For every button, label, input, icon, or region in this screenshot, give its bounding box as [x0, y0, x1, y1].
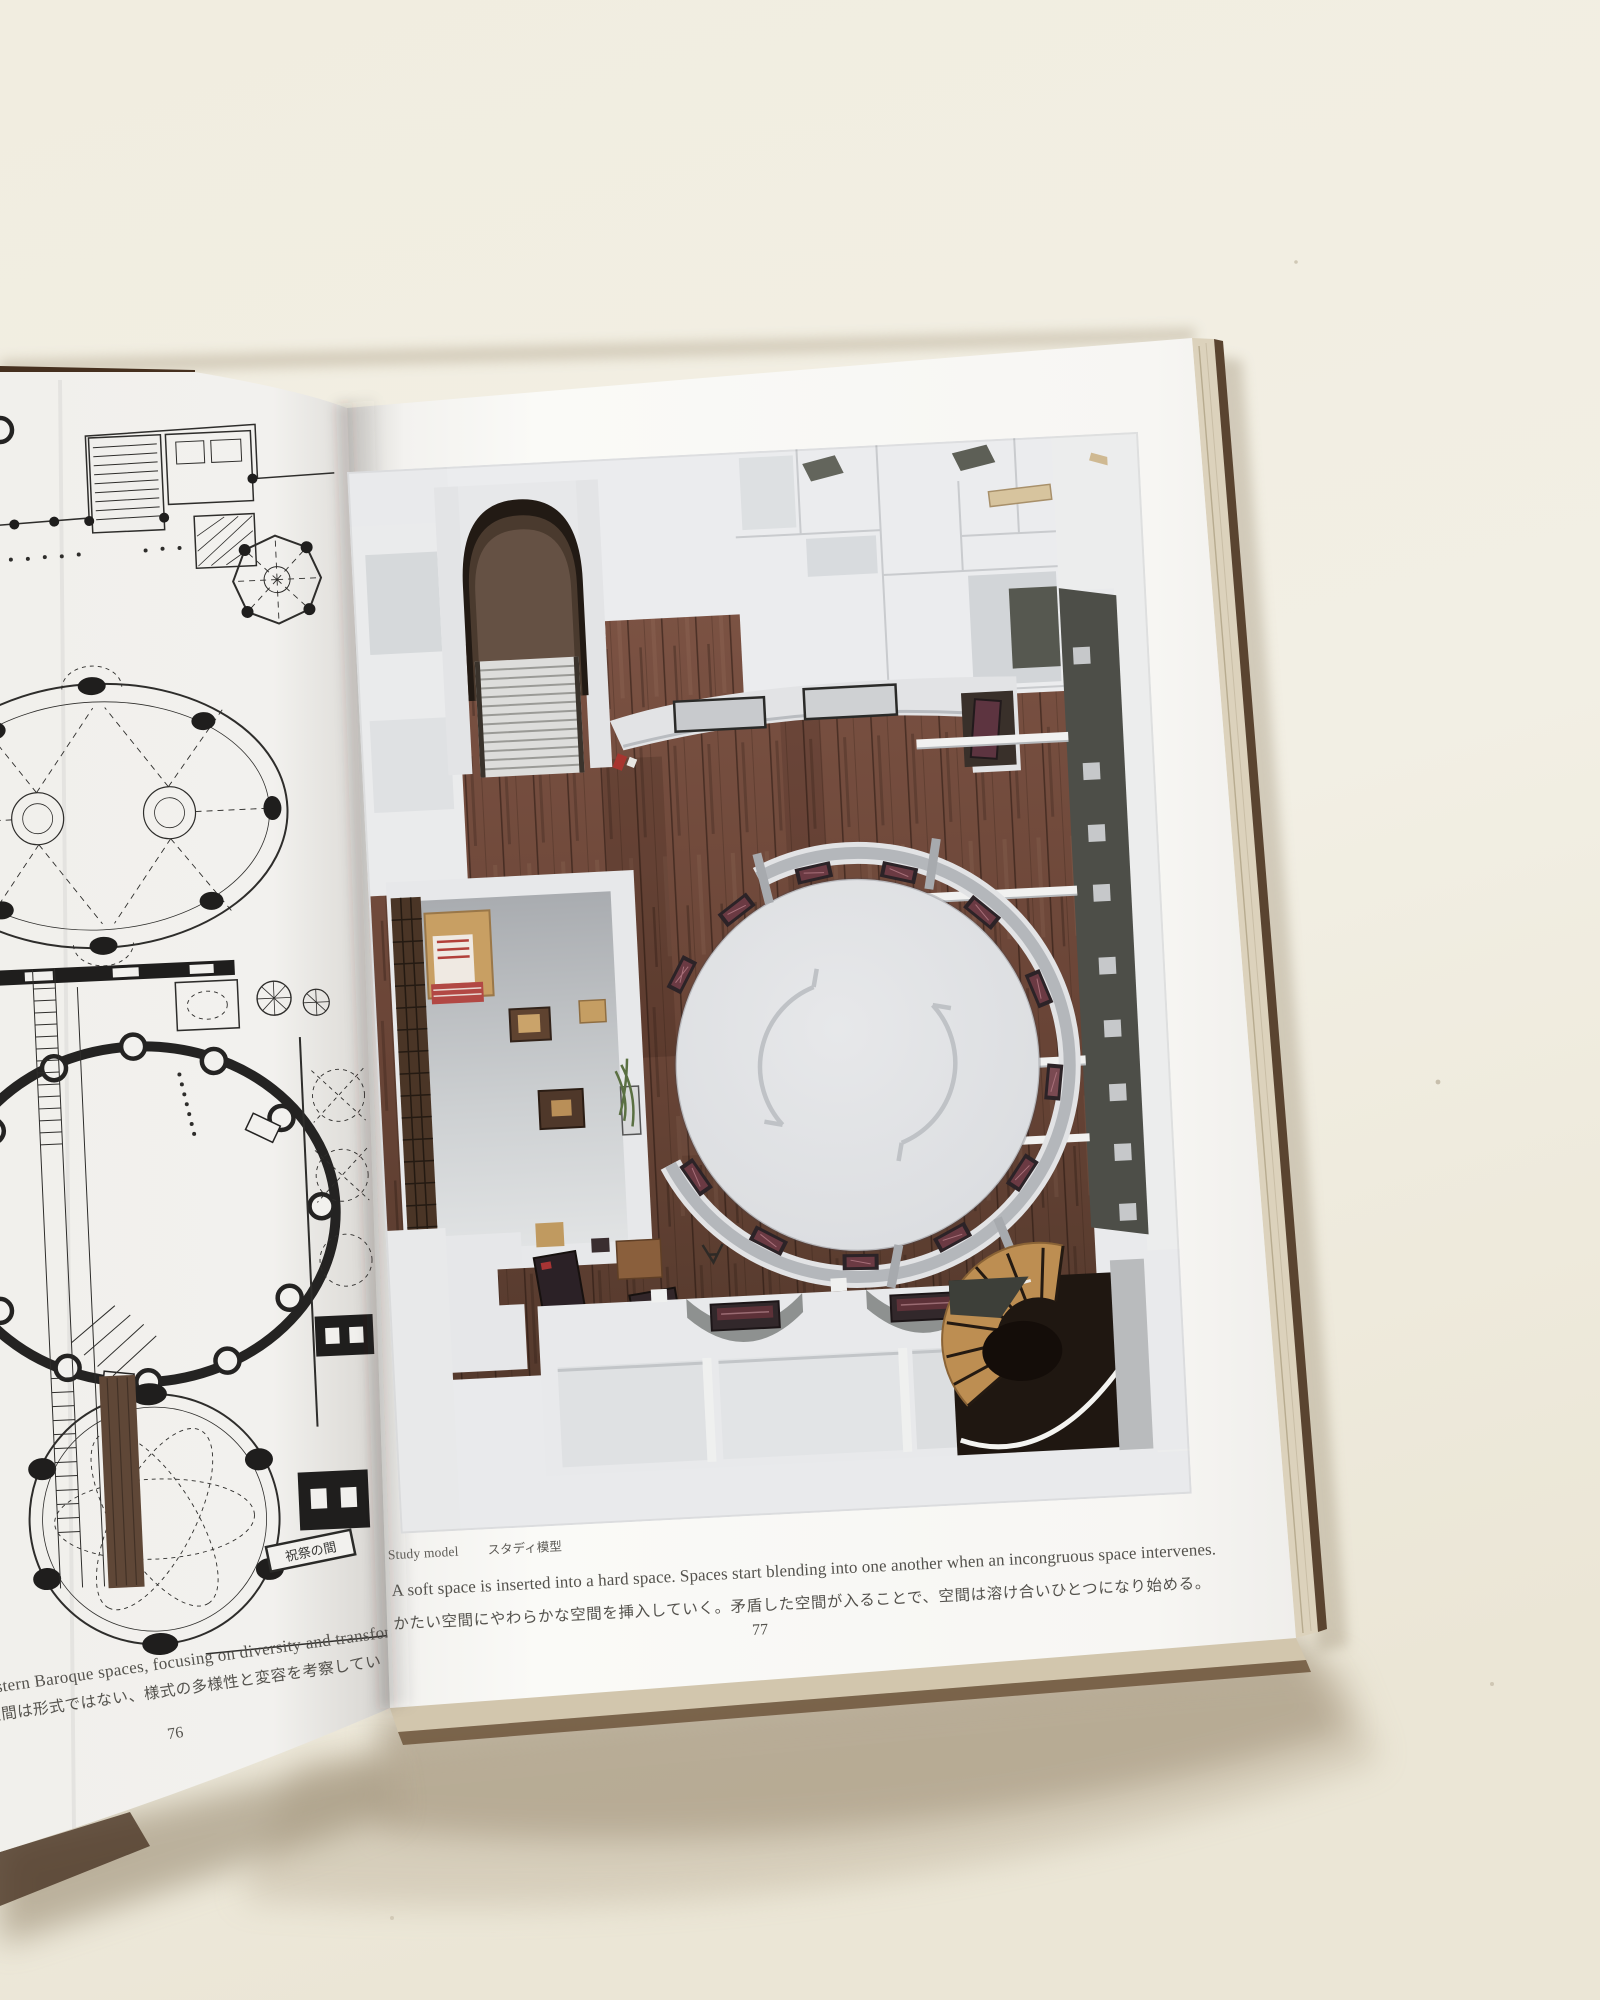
left-page-number: 76 [166, 1724, 184, 1743]
photograph-of-open-book: 祝祭の間 se and Western Baroque spaces, focu… [0, 0, 1600, 2000]
book: 祝祭の間 se and Western Baroque spaces, focu… [0, 338, 1327, 1906]
model-photo-figure [347, 432, 1192, 1534]
right-page: Study model スタディ模型 A soft space is inser… [333, 338, 1296, 1710]
right-page-number: 77 [752, 1621, 769, 1639]
